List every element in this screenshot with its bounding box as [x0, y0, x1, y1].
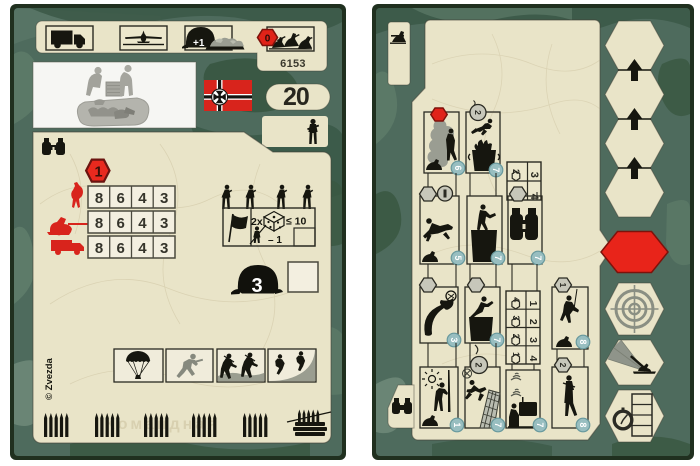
svg-text:7: 7 — [535, 423, 545, 428]
svg-text:6: 6 — [117, 190, 125, 207]
svg-text:2x: 2x — [251, 216, 263, 228]
svg-text:≤ 10: ≤ 10 — [286, 216, 307, 228]
svg-text:4: 4 — [138, 215, 147, 232]
svg-text:2: 2 — [510, 169, 521, 174]
svg-text:8: 8 — [578, 340, 588, 345]
svg-text:7: 7 — [493, 423, 503, 428]
svg-text:8: 8 — [95, 215, 103, 232]
svg-text:3: 3 — [160, 215, 168, 232]
svg-text:3: 3 — [160, 190, 168, 207]
svg-text:3: 3 — [528, 172, 540, 178]
svg-text:6: 6 — [117, 240, 125, 257]
svg-text:6: 6 — [117, 215, 125, 232]
svg-text:6: 6 — [453, 166, 463, 171]
svg-text:7: 7 — [493, 256, 503, 261]
svg-text:3: 3 — [527, 337, 539, 343]
svg-text:2: 2 — [511, 334, 521, 339]
svg-text:3: 3 — [160, 240, 168, 257]
svg-text:7: 7 — [533, 256, 543, 261]
svg-text:3: 3 — [511, 315, 521, 320]
svg-text:8: 8 — [95, 190, 103, 207]
svg-text:3: 3 — [251, 275, 262, 297]
svg-text:4: 4 — [138, 190, 147, 207]
svg-text:– 1: – 1 — [268, 235, 282, 246]
svg-text:1: 1 — [452, 423, 462, 428]
svg-text:2: 2 — [474, 362, 484, 367]
svg-text:4: 4 — [528, 194, 540, 201]
svg-text:7: 7 — [492, 338, 502, 343]
svg-text:1: 1 — [527, 301, 539, 307]
svg-text:4: 4 — [527, 355, 539, 361]
svg-text:+1: +1 — [193, 38, 205, 49]
svg-text:3: 3 — [449, 338, 459, 343]
svg-text:7: 7 — [491, 168, 501, 173]
svg-text:4: 4 — [511, 297, 521, 302]
svg-text:© Zvezda: © Zvezda — [44, 357, 55, 400]
svg-text:20: 20 — [283, 83, 309, 111]
svg-text:1: 1 — [94, 165, 102, 181]
svg-text:6153: 6153 — [280, 58, 306, 70]
svg-text:2: 2 — [527, 319, 539, 325]
svg-text:1: 1 — [511, 352, 521, 357]
svg-text:2: 2 — [473, 110, 483, 115]
svg-text:0: 0 — [265, 34, 271, 45]
svg-text:8: 8 — [95, 240, 103, 257]
svg-text:5: 5 — [453, 256, 463, 261]
svg-text:1: 1 — [558, 283, 568, 288]
svg-text:8: 8 — [578, 423, 588, 428]
svg-text:4: 4 — [138, 240, 147, 257]
svg-text:2: 2 — [558, 363, 568, 368]
